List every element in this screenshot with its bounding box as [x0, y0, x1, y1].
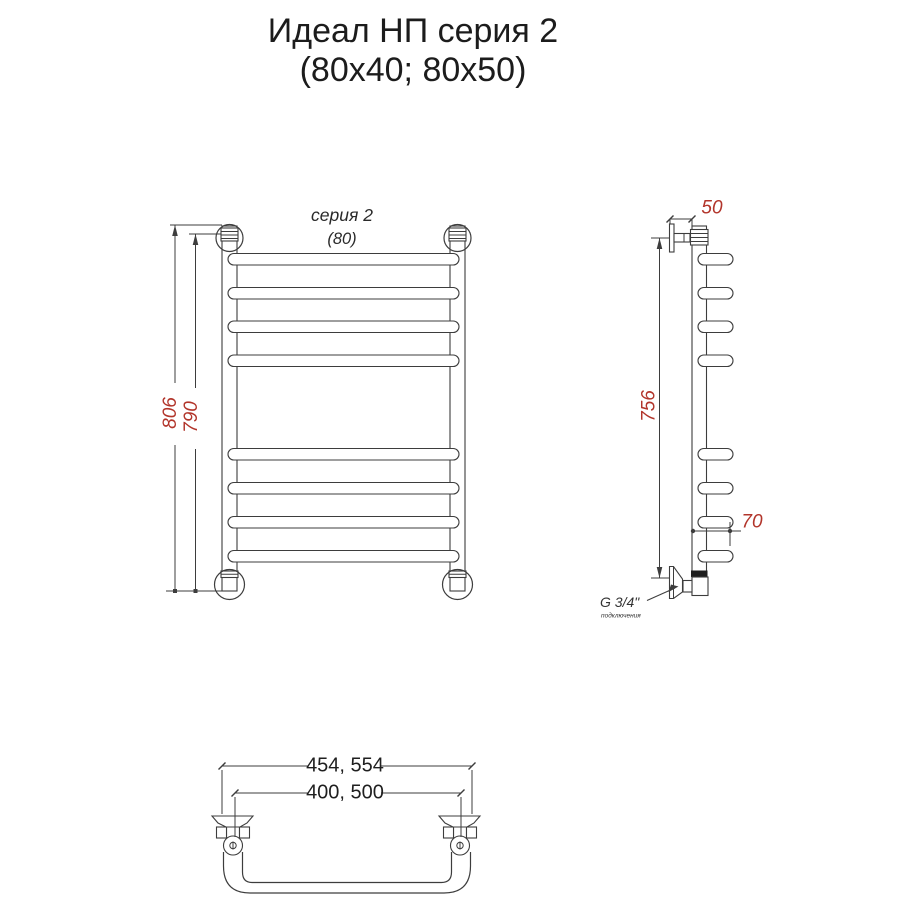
valve-escutcheon-cone	[670, 567, 683, 599]
front-left-post	[222, 226, 237, 591]
thread-note-label: подключения	[601, 612, 641, 620]
front-dim-790: 790	[181, 401, 202, 433]
valve-seal-band	[691, 571, 708, 578]
side-dim-50: 50	[701, 198, 723, 219]
valve-connector	[683, 581, 692, 593]
side-view: G 3/4" подключения 50 756 70	[600, 198, 763, 620]
front-size-label: (80)	[327, 230, 356, 248]
front-right-post	[450, 226, 465, 591]
side-valve-assembly	[670, 567, 709, 599]
thread-size-label: G 3/4"	[600, 594, 640, 610]
front-mounting-brackets	[215, 225, 473, 600]
side-wall-plate	[670, 224, 675, 252]
side-top-collar	[691, 230, 709, 246]
side-dim-70: 70	[741, 512, 763, 533]
side-dim-756: 756	[639, 390, 660, 422]
bottom-dim-outer: 454, 554	[306, 755, 384, 777]
bottom-u-tube	[224, 852, 471, 893]
front-dim-806: 806	[160, 397, 181, 429]
valve-body	[692, 577, 708, 596]
bottom-view: 454, 554 400, 500	[212, 755, 480, 894]
bottom-left-mount	[212, 816, 253, 855]
front-series-label: серия 2	[311, 205, 373, 225]
bottom-dim-inner: 400, 500	[306, 782, 384, 804]
side-bracket-arm	[674, 234, 690, 243]
drawing-sheet: Идеал НП серия 2 (80x40; 80x50)	[0, 0, 900, 900]
front-rungs	[228, 254, 459, 563]
technical-drawing: серия 2 (80) 806 790	[0, 0, 900, 900]
bottom-right-mount	[439, 816, 480, 855]
front-bottom-collars	[221, 571, 466, 578]
front-view: серия 2 (80) 806 790	[160, 205, 473, 600]
side-post	[692, 226, 707, 595]
